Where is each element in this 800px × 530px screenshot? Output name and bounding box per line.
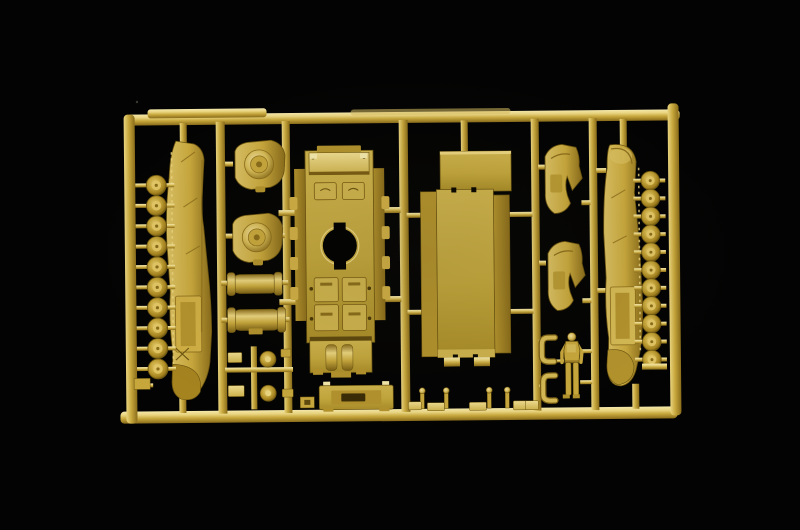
fuel-tank-2 (227, 307, 285, 335)
fender-bumps-shape (382, 256, 390, 269)
wheel-stub (135, 204, 146, 208)
rear-plate-slot (341, 393, 365, 401)
hull-rear-section-shape (331, 371, 351, 377)
wheel-stub (634, 250, 642, 254)
panel-bottom-tab (474, 357, 490, 366)
fuel-tank-2-shape (249, 328, 263, 334)
fender-piece-2-shape (553, 271, 565, 289)
wheel-axle-hole (155, 184, 158, 187)
hull-rear-section-shape (313, 369, 323, 375)
wheel-axle-hole (650, 340, 653, 343)
hull-rear-section-shape (310, 340, 372, 373)
deck-hole (310, 317, 314, 321)
fender-bumps-shape (290, 257, 298, 270)
exhaust-pipe-parts (542, 338, 556, 401)
gate-bottom-right-track (632, 384, 639, 409)
wheel-stub (136, 245, 147, 249)
wheel-axle-hole (155, 204, 158, 207)
wheel-stub (167, 265, 175, 269)
ring-slot-top (334, 223, 346, 232)
fender-bumps-shape (290, 227, 298, 240)
sprocket-housing-2-shape (254, 234, 260, 240)
engine-hatches-shape (342, 277, 366, 301)
hull-floor-panel-part (420, 151, 513, 367)
hull-rear-section-shape (342, 344, 353, 370)
mini-runner-h (225, 367, 293, 373)
connector-stub (407, 310, 422, 315)
panel-bottom-tab (444, 357, 460, 366)
connector-stub (580, 380, 592, 384)
figure-leg-left (565, 362, 571, 395)
small-parts-cluster (225, 346, 294, 410)
small-fitting (228, 353, 242, 363)
wheel-axle-hole (156, 367, 159, 370)
hinge (310, 154, 317, 159)
wheel-axle-hole (156, 347, 159, 350)
wheel-stub (635, 322, 643, 326)
fuel-tank-1-shape (274, 272, 282, 295)
wheel-axle-hole (650, 304, 653, 307)
wheel-stub (634, 268, 642, 272)
wheel-stub (167, 306, 175, 310)
wheel-axle-hole (649, 233, 652, 236)
periscope-pin (505, 391, 509, 408)
periscope-pin (444, 392, 448, 409)
sprocket-housing-2-shape (253, 259, 263, 265)
pin-head (419, 388, 425, 394)
gate-top-left-track (180, 123, 187, 144)
sprocket-housing-1-shape (255, 186, 265, 192)
fuel-tank-2-shape (227, 308, 235, 333)
engine-hatches-shape (348, 282, 360, 285)
wheel-axle-hole (650, 286, 653, 289)
fender-bumps-shape (290, 287, 298, 300)
small-block-fitting (469, 402, 486, 410)
panel-top-tab (440, 151, 511, 192)
small-block-fitting (427, 403, 444, 411)
fender-bumps-shape (381, 196, 389, 209)
sprue (118, 103, 683, 423)
figure-leg-right (573, 362, 579, 395)
connector-stub (582, 298, 591, 303)
wheel-axle-hole (155, 245, 158, 248)
wheel-stub (137, 326, 148, 330)
wheel-stub (168, 326, 176, 330)
panel-main (436, 189, 495, 358)
fender-bumps-shape (289, 197, 297, 210)
hull-rear-section (310, 336, 372, 378)
driver-hatches-shape (314, 183, 336, 200)
wheel-stub (634, 304, 642, 308)
connector-stub (539, 261, 546, 266)
fender-bumps-shape (382, 286, 390, 299)
wheel-stub (167, 285, 175, 289)
panel-flange-right (493, 195, 511, 353)
wheel-stub (634, 214, 642, 218)
fuel-tank-2-shape (277, 307, 285, 332)
turret-ring-opening (323, 228, 357, 262)
engine-hatches-shape (314, 305, 338, 331)
wheel-axle-hole (649, 197, 652, 200)
wheel-axle-hole (649, 251, 652, 254)
frame-rail-left (124, 115, 138, 424)
wheel-rail-stub (642, 363, 667, 369)
figure-chest-highlight (567, 344, 576, 352)
wheel-stub (167, 224, 175, 228)
fender-piece-1-shape (550, 174, 562, 192)
wheel-stub (634, 286, 642, 290)
track-inner-slot (615, 293, 629, 339)
glacis-shadow-line (309, 171, 369, 175)
driver-hatches-shape (342, 182, 364, 199)
fuel-tank-1-shape (227, 273, 235, 296)
engine-hatches-shape (320, 313, 332, 316)
runner-vertical-3 (399, 120, 411, 412)
pipe-1 (542, 338, 555, 362)
wheel-stub (137, 347, 148, 351)
wheel-stub (136, 285, 147, 289)
wheel-axle-hole (156, 306, 159, 309)
foot (323, 408, 333, 412)
small-fitting (282, 389, 293, 397)
sprue-photo (0, 0, 800, 530)
gate-top-panel (461, 120, 468, 153)
sprocket-housing-1-shape (256, 161, 262, 167)
wheel-axle-hole (155, 225, 158, 228)
panel-notch (471, 187, 476, 192)
fender-piece-1 (545, 144, 583, 213)
engine-hatches-shape (342, 304, 366, 330)
connector-stub (596, 168, 606, 173)
wheel-stub (168, 346, 176, 350)
wheel-axle-hole (156, 327, 159, 330)
upper-hull-part (289, 145, 391, 378)
sprocket-housing-1 (235, 140, 285, 192)
deck-hole (309, 287, 313, 291)
wheel-stub (136, 306, 147, 310)
connector-stub (225, 162, 233, 167)
photo-stage (0, 0, 800, 530)
hull-rear-section-shape (356, 368, 366, 374)
engine-hatches-shape (320, 283, 332, 286)
fuel-tank-1 (227, 272, 282, 296)
fuel-tank-1-shape (231, 274, 279, 293)
connector-stub (407, 213, 422, 218)
runner-vertical-5 (589, 118, 600, 410)
wheel-axle-hole (650, 269, 653, 272)
wheel-axle-hole (650, 358, 653, 361)
engine-hatches-shape (314, 278, 338, 302)
figure-head (567, 333, 575, 341)
frame-rail-right (667, 103, 681, 415)
sprocket-housing-parts (232, 140, 286, 266)
pipe-2 (543, 376, 555, 401)
connector-stub (509, 309, 533, 314)
wheel-stub (167, 244, 175, 248)
pin-head (486, 387, 492, 393)
engine-hatches-shape (348, 312, 360, 315)
connector-stub (538, 165, 545, 170)
wheel-stub (635, 358, 643, 362)
wheel-stub (633, 197, 641, 201)
pin-head (443, 388, 449, 394)
wheel-axle-hole (649, 179, 652, 182)
wheel-axle-hole (155, 265, 158, 268)
panel-flange-left (420, 192, 438, 357)
wheel-axle-hole (156, 286, 159, 289)
small-fitting (228, 386, 244, 397)
crew-figure-part (562, 333, 583, 399)
cap-hub (265, 390, 271, 396)
fender-bumps-shape (382, 226, 390, 239)
track-run-left-part (166, 141, 213, 400)
wheel-stub (635, 340, 643, 344)
fender-piece-2 (548, 241, 586, 310)
connector-stub (581, 200, 590, 205)
figure-foot (563, 394, 570, 398)
periscope-pin-parts (408, 387, 538, 411)
wheel-stub (135, 183, 146, 187)
fuel-tank-parts (227, 272, 286, 335)
wheel-stub (136, 224, 147, 228)
wheel-stub (137, 367, 148, 371)
hull-front-tab (317, 145, 361, 152)
panel-notch (451, 187, 456, 192)
deck-hole (367, 286, 371, 290)
corner-tab-part (134, 378, 150, 389)
wheel-stub (136, 265, 147, 269)
connector-stub (278, 210, 296, 216)
clip-notch (304, 400, 310, 405)
small-block-fitting (525, 401, 538, 410)
periscope-pin (487, 391, 491, 408)
wheel-stub (634, 232, 642, 236)
wheel-axle-hole (649, 215, 652, 218)
connector-stub (509, 212, 533, 217)
sprocket-housing-2 (233, 213, 283, 265)
wheel-stub (168, 367, 176, 371)
wheel-axle-hole (650, 322, 653, 325)
wheel-stub (166, 183, 174, 187)
panel-bottom-strip (438, 349, 495, 358)
deck-hole (368, 316, 372, 320)
dust-speck (136, 101, 138, 103)
track-inner-slot (180, 302, 195, 346)
hinge (360, 153, 367, 158)
cap-hub (265, 356, 271, 362)
gate-top-right-track (620, 119, 627, 148)
ring-slot-bottom (334, 261, 346, 270)
wheel-stub (633, 179, 641, 183)
foot (379, 407, 389, 411)
hull-rear-section-shape (326, 345, 337, 371)
frame-rail-top-gate (148, 108, 267, 118)
wheel-stub (166, 204, 174, 208)
fuel-tank-2-shape (231, 309, 281, 330)
fender-piece-parts (545, 144, 586, 310)
figure-foot (573, 394, 580, 398)
small-block-fitting (408, 402, 421, 410)
pin-head (504, 387, 510, 393)
mini-runner-v (251, 346, 258, 409)
small-fitting (281, 349, 291, 357)
